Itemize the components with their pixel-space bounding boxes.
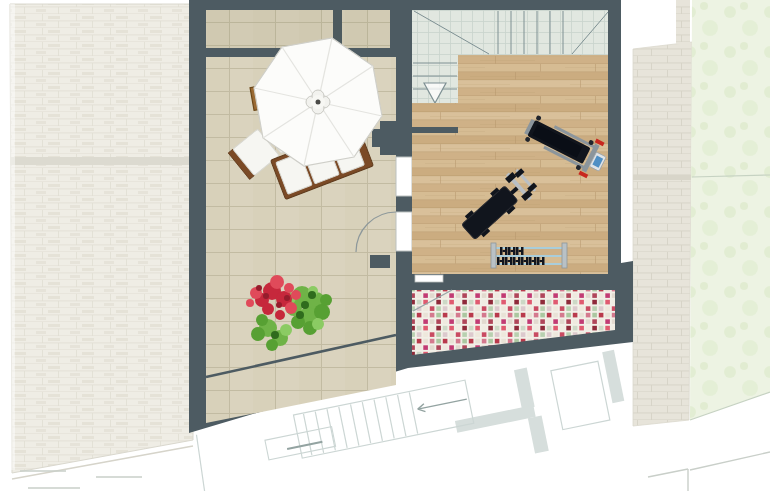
gym-lower-door: [415, 275, 443, 282]
brick-column-top: [676, 0, 690, 44]
door-panel-upper: [396, 157, 412, 196]
lower-faint-lines: [20, 452, 770, 491]
brick-divider: [633, 175, 691, 180]
door-panel-lower: [396, 212, 412, 251]
terrace-strip-tint: [206, 10, 390, 48]
lower-room-outline: [551, 361, 610, 429]
floor-plan-canvas: [0, 0, 770, 491]
neighbor-wall-right: [633, 0, 692, 426]
roof-panel-divider: [10, 157, 193, 165]
lower-stair-arrow: [417, 395, 468, 413]
stair-landing: [412, 103, 458, 127]
floor-plan-svg: [0, 0, 770, 491]
neighbor-roof-left: [10, 4, 193, 479]
garden-right: [690, 0, 770, 420]
wall-pier: [370, 255, 390, 268]
